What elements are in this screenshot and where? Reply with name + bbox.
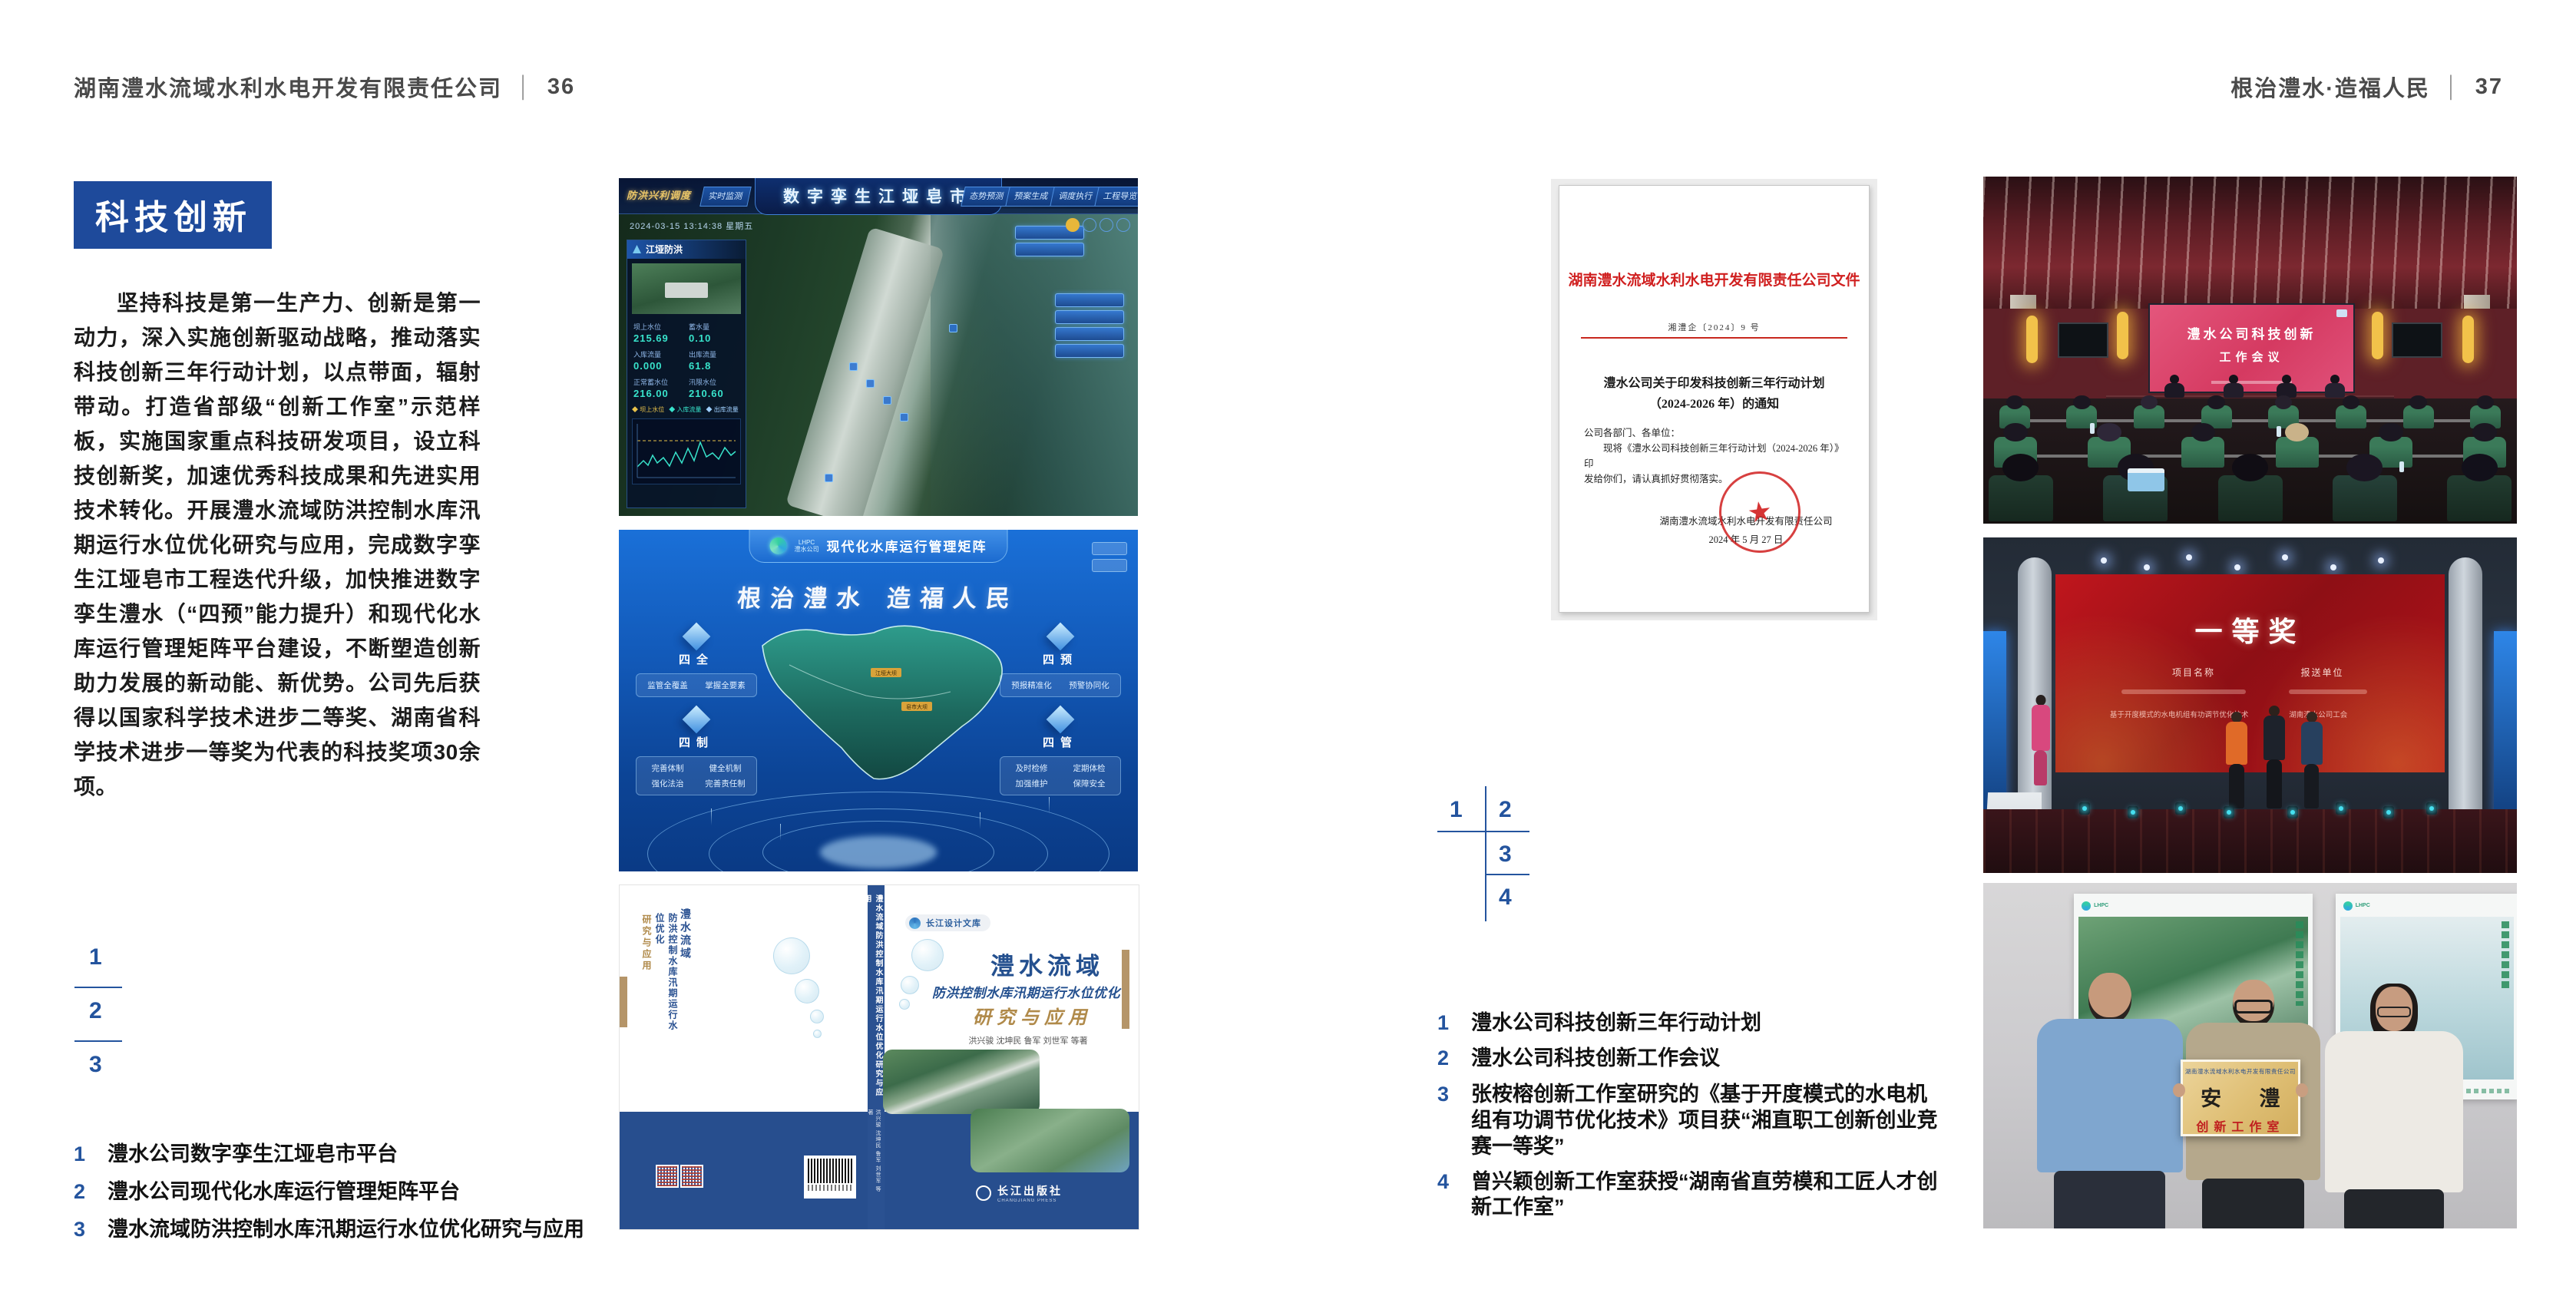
left-data-panel: 江垭防洪 坝上水位215.69 蓄水量0.10 入库流量0.000 出库流量61… bbox=[627, 240, 746, 508]
figure-official-document: 湖南澧水流域水利水电开发有限责任公司文件 湘澧企〔2024〕9 号 澧水公司关于… bbox=[1551, 179, 1877, 620]
figure-index-1: 1 bbox=[1450, 797, 1463, 823]
water-bubble bbox=[810, 1010, 824, 1023]
map-marker bbox=[825, 474, 833, 482]
cube-icon bbox=[683, 623, 711, 651]
qr-code bbox=[656, 1165, 679, 1188]
motto: 根治澧水·造福人民 bbox=[2230, 71, 2430, 103]
cover-authors: 洪兴骏 沈坤民 鲁军 刘世军 等著 bbox=[936, 1034, 1120, 1046]
spine-authors: 洪兴骏 沈坤民 鲁军 刘世军 等著 bbox=[871, 1109, 881, 1194]
water-bubble bbox=[813, 1030, 822, 1038]
stat: 入库流量0.000 bbox=[633, 349, 684, 373]
stat: 正常蓄水位216.00 bbox=[633, 377, 684, 401]
figure-index-3: 3 bbox=[89, 1052, 102, 1078]
slogan-calligraphy: 根治澧水 造福人民 bbox=[619, 579, 1138, 613]
map-marker-label: 江垭大坝 bbox=[875, 670, 897, 676]
page-number-left: 36 bbox=[547, 74, 575, 100]
light-tick bbox=[980, 812, 980, 829]
stage-light bbox=[2234, 564, 2240, 570]
timestamp: 2024-03-15 13:14:38 星期五 bbox=[630, 220, 753, 232]
figure-index-1: 1 bbox=[89, 944, 102, 970]
tissue-box bbox=[2128, 468, 2164, 491]
caption-number: 2 bbox=[74, 1179, 94, 1205]
corner-group-siguan: 四管 及时检修 定期体检 加强维护 保障安全 bbox=[1000, 709, 1121, 795]
platform-title: 现代化水库运行管理矩阵 bbox=[827, 536, 987, 555]
header-divider: │ bbox=[518, 75, 532, 99]
lhpc-logo-icon: LHPC bbox=[2082, 901, 2108, 911]
menu-button[interactable] bbox=[1092, 559, 1127, 572]
company-name: 湖南澧水流域水利水电开发有限责任公司 bbox=[74, 71, 502, 103]
logo-text: LHPC 澧水公司 bbox=[795, 539, 819, 553]
dam-thumbnail bbox=[632, 263, 741, 314]
light-tick bbox=[711, 808, 712, 825]
caption-list-left: 1 澧水公司数字孪生江垭皂市平台 2 澧水公司现代化水库运行管理矩阵平台 3 澧… bbox=[74, 1142, 584, 1242]
layers-icon[interactable] bbox=[1083, 218, 1096, 232]
moving-head-light bbox=[2224, 806, 2234, 818]
stage-light bbox=[2144, 564, 2150, 570]
map-marker bbox=[849, 362, 858, 371]
page-header-right: 根治澧水·造福人民 │ 37 bbox=[2230, 71, 2503, 103]
moving-head-light bbox=[2426, 802, 2437, 815]
audience-row bbox=[1999, 405, 2501, 428]
user-icon[interactable] bbox=[1066, 218, 1080, 232]
caption-row: 2 澧水公司现代化水库运行管理矩阵平台 bbox=[74, 1179, 584, 1205]
light-tick bbox=[780, 824, 781, 841]
moving-head-light bbox=[2128, 806, 2138, 818]
page-number-right: 37 bbox=[2475, 74, 2503, 100]
side-led-screen bbox=[2494, 631, 2517, 819]
cover-title: 澧水流域 bbox=[908, 947, 1104, 981]
corner-group-siquan: 四全 监管全覆盖 掌握全要素 bbox=[636, 627, 757, 697]
index-divider bbox=[1486, 874, 1529, 875]
info-pill bbox=[1055, 327, 1124, 341]
side-tv-screen bbox=[2392, 322, 2442, 358]
caption-text: 澧水公司现代化水库运行管理矩阵平台 bbox=[107, 1179, 460, 1205]
panel-title: 江垭防洪 bbox=[627, 240, 746, 259]
caption-number: 3 bbox=[1437, 1081, 1457, 1159]
caption-number: 1 bbox=[1437, 1010, 1457, 1036]
award-led-screen: 一等奖 项目名称 报送单位 基于开度模式的水电机组有功调节优化技术 湖南澧水公司… bbox=[2055, 574, 2445, 772]
host-figure bbox=[2032, 695, 2050, 787]
map-marker bbox=[883, 396, 891, 405]
figure-index-4: 4 bbox=[1499, 884, 1512, 911]
audience-row-foreground bbox=[1989, 475, 2512, 521]
caption-text: 澧水公司数字孪生江垭皂市平台 bbox=[107, 1142, 398, 1167]
caption-text: 澧水公司科技创新三年行动计划 bbox=[1471, 1010, 1761, 1036]
figure-digital-twin-platform: 防洪兴利调度 实时监测 洪水预报 防汛预警 数字孪生江垭皂市 态势预测 预案生成… bbox=[619, 178, 1138, 516]
tab-plan-generation[interactable]: 预案生成 bbox=[1005, 187, 1057, 207]
chart-legend: ◆ 坝上水位 ◆ 入库流量 ◆ 出库流量 bbox=[627, 404, 746, 415]
index-divider bbox=[74, 987, 122, 988]
speaker-silhouette bbox=[2277, 375, 2297, 398]
column-submitting-unit: 报送单位 bbox=[2300, 666, 2343, 679]
locate-icon[interactable] bbox=[1100, 218, 1113, 232]
water-bottle bbox=[2090, 423, 2095, 434]
moving-head-light bbox=[2287, 806, 2298, 818]
document-red-header: 湖南澧水流域水利水电开发有限责任公司文件 bbox=[1559, 269, 1869, 289]
close-button[interactable] bbox=[1092, 542, 1127, 555]
caption-text: 澧水流域防洪控制水库汛期运行水位优化研究与应用 bbox=[107, 1217, 584, 1242]
lhpc-logo-icon bbox=[770, 537, 787, 554]
cube-icon bbox=[683, 706, 711, 734]
info-pill bbox=[1055, 310, 1124, 324]
body-paragraph: 坚持科技是第一生产力、创新是第一动力，深入实施创新驱动战略，推动落实科技创新三年… bbox=[74, 286, 481, 804]
stat: 汛限水位210.60 bbox=[689, 377, 739, 401]
water-bubble bbox=[795, 979, 819, 1003]
water-bottle bbox=[2277, 426, 2281, 437]
wall-lamp bbox=[2372, 312, 2383, 359]
speaker-silhouette bbox=[2164, 375, 2184, 398]
document-number: 湘澧企〔2024〕9 号 bbox=[1559, 321, 1869, 333]
screen-title-line1: 澧水公司科技创新 bbox=[2150, 323, 2353, 342]
publisher-logo: 长江出版社 CHANGJIANG PRESS bbox=[976, 1183, 1063, 1203]
series-logo-icon bbox=[909, 918, 921, 929]
caption-number: 2 bbox=[1437, 1046, 1457, 1071]
map-marker bbox=[949, 324, 957, 332]
front-cover-tan-bar bbox=[1122, 950, 1129, 1029]
figure-index-2: 2 bbox=[89, 998, 102, 1024]
index-divider bbox=[1437, 831, 1529, 832]
qr-code bbox=[680, 1165, 703, 1188]
moving-head-light bbox=[2336, 802, 2346, 815]
moving-head-light bbox=[2079, 802, 2090, 815]
caption-number: 1 bbox=[74, 1142, 94, 1167]
speaker-silhouette bbox=[2224, 375, 2244, 398]
recipient-navy-jacket bbox=[2301, 712, 2323, 810]
plaque-calligraphy: 安 澧 bbox=[2183, 1082, 2297, 1112]
back-cover-title: 澧水流域 防洪控制水库汛期运行水位优化 研究与应用 bbox=[640, 908, 692, 1037]
stat: 坝上水位215.69 bbox=[633, 322, 684, 346]
caption-row: 4 曾兴颖创新工作室获授“湖南省直劳模和工匠人才创新工作室” bbox=[1437, 1169, 1938, 1220]
innovation-studio-plaque: 湖南澧水流域水利水电开发有限责任公司 安 澧 创新工作室 bbox=[2181, 1060, 2300, 1137]
column-project-name: 项目名称 bbox=[2172, 666, 2215, 679]
meeting-ceiling bbox=[1983, 177, 2517, 316]
header-divider: │ bbox=[2445, 75, 2460, 99]
document-red-rule bbox=[1581, 337, 1847, 339]
stage-light bbox=[2186, 554, 2192, 560]
entry-text-blurred bbox=[2121, 689, 2246, 694]
info-pill bbox=[1055, 293, 1124, 307]
lhpc-logo-icon: LHPC bbox=[2343, 901, 2370, 911]
caption-text: 澧水公司科技创新工作会议 bbox=[1471, 1046, 1720, 1071]
plaque-title: 创新工作室 bbox=[2183, 1116, 2297, 1135]
document-title: 澧水公司关于印发科技创新三年行动计划 （2024-2026 年）的通知 bbox=[1559, 373, 1869, 415]
caption-row: 3 张桉榕创新工作室研究的《基于开度模式的水电机组有功调节优化技术》项目获“湘直… bbox=[1437, 1081, 1938, 1159]
spine-title: 澧水流域防洪控制水库汛期运行水位优化研究与应用 bbox=[868, 894, 884, 1103]
woman-white-tee bbox=[2325, 984, 2463, 1229]
photo-studio-plaque: LHPC LHPC 湖南澧水流域水利水 bbox=[1983, 883, 2517, 1228]
figure-book-cover: 澧水流域 防洪控制水库汛期运行水位优化 研究与应用 澧水流域防洪控制水库汛期运行… bbox=[619, 884, 1139, 1230]
screen-title-line2: 工作会议 bbox=[2150, 349, 2353, 365]
settings-icon[interactable] bbox=[1116, 218, 1130, 232]
moving-head-light bbox=[2383, 806, 2394, 818]
stage-pillar bbox=[2449, 557, 2482, 839]
corner-group-sizhi: 四制 完善体制 健全机制 强化法治 完善责任制 bbox=[636, 709, 757, 795]
stage-light bbox=[2330, 564, 2336, 570]
figure-matrix-platform: LHPC 澧水公司 现代化水库运行管理矩阵 根治澧水 造福人民 江垭大坝 皂市大… bbox=[619, 530, 1138, 871]
photo-award-ceremony: 一等奖 项目名称 报送单位 基于开度模式的水电机组有功调节优化技术 湖南澧水公司… bbox=[1983, 537, 2517, 873]
platform-header: LHPC 澧水公司 现代化水库运行管理矩阵 bbox=[749, 530, 1008, 563]
recipient-orange-jacket bbox=[2226, 712, 2247, 810]
caption-row: 2 澧水公司科技创新工作会议 bbox=[1437, 1046, 1938, 1071]
tab-situation-forecast[interactable]: 态势预测 bbox=[961, 187, 1013, 207]
watershed-map: 江垭大坝 皂市大坝 bbox=[720, 611, 1037, 795]
water-bubble bbox=[773, 937, 810, 974]
caption-row: 3 澧水流域防洪控制水库汛期运行水位优化研究与应用 bbox=[74, 1217, 584, 1242]
stage-light bbox=[2282, 554, 2288, 560]
caption-row: 1 澧水公司科技创新三年行动计划 bbox=[1437, 1010, 1938, 1036]
ripple-glow bbox=[820, 836, 937, 868]
tab-dispatch-execution[interactable]: 调度执行 bbox=[1050, 187, 1102, 207]
caption-text: 曾兴颖创新工作室获授“湖南省直劳模和工匠人才创新工作室” bbox=[1471, 1169, 1938, 1220]
poster-vertical-calligraphy bbox=[2502, 921, 2509, 990]
caption-number: 3 bbox=[74, 1217, 94, 1242]
figure-index-2: 2 bbox=[1499, 797, 1512, 823]
caption-row: 1 澧水公司数字孪生江垭皂市平台 bbox=[74, 1142, 584, 1167]
caption-number: 4 bbox=[1437, 1169, 1457, 1220]
page-header-left: 湖南澧水流域水利水电开发有限责任公司 │ 36 bbox=[74, 71, 575, 103]
document-sheet: 湖南澧水流域水利水电开发有限责任公司文件 湘澧企〔2024〕9 号 澧水公司关于… bbox=[1559, 185, 1870, 613]
wall-lamp bbox=[2462, 316, 2474, 363]
dam-photo-front bbox=[883, 1050, 1040, 1114]
water-bottle bbox=[2399, 461, 2404, 472]
speaker-silhouette bbox=[2325, 375, 2345, 398]
cube-icon bbox=[1047, 623, 1075, 651]
map-marker bbox=[900, 413, 908, 422]
powerhouse-photo bbox=[971, 1109, 1129, 1172]
cover-subtitle: 防洪控制水库汛期运行水位优化 bbox=[901, 982, 1120, 1001]
plaque-header: 湖南澧水流域水利水电开发有限责任公司 bbox=[2183, 1067, 2297, 1076]
side-led-screen bbox=[1983, 631, 2006, 819]
screen-logo-icon bbox=[2336, 309, 2347, 317]
tab-project-tour[interactable]: 工程导览 bbox=[1094, 187, 1138, 207]
stat: 蓄水量0.10 bbox=[689, 322, 739, 346]
entry-text-blurred bbox=[2289, 689, 2366, 694]
caption-list-right: 1 澧水公司科技创新三年行动计划 2 澧水公司科技创新工作会议 3 张桉榕创新工… bbox=[1437, 1010, 1938, 1220]
man-blue-polo bbox=[2037, 973, 2183, 1228]
book-spread: 湖南澧水流域水利水电开发有限责任公司 │ 36 根治澧水·造福人民 │ 37 科… bbox=[0, 0, 2576, 1306]
cube-icon bbox=[1047, 706, 1075, 734]
light-tick bbox=[1049, 797, 1050, 814]
moving-head-light bbox=[2175, 802, 2186, 815]
side-tv-screen bbox=[2058, 322, 2108, 358]
tab-realtime-monitor[interactable]: 实时监测 bbox=[699, 187, 752, 207]
map-marker bbox=[866, 379, 875, 388]
wall-lamp bbox=[2117, 312, 2128, 359]
document-body: 公司各部门、各单位： 现将《澧水公司科技创新三年行动计划（2024-2026 年… bbox=[1584, 425, 1846, 487]
mode-label: 防洪兴利调度 bbox=[627, 187, 691, 202]
stage-floor bbox=[1983, 809, 2517, 873]
hand bbox=[2173, 1083, 2185, 1097]
photo-innovation-meeting: 澧水公司科技创新 工作会议 bbox=[1983, 177, 2517, 524]
caption-text: 张桉榕创新工作室研究的《基于开度模式的水电机组有功调节优化技术》项目获“湘直职工… bbox=[1471, 1081, 1938, 1159]
cover-title-accent: 研究与应用 bbox=[908, 1002, 1092, 1029]
water-level-chart bbox=[632, 418, 741, 484]
info-pill bbox=[1055, 344, 1124, 358]
info-pill bbox=[1015, 243, 1084, 256]
section-title: 科技创新 bbox=[74, 181, 272, 249]
recipient-suit bbox=[2264, 706, 2285, 810]
stat: 出库流量61.8 bbox=[689, 349, 739, 373]
wall-lamp bbox=[2026, 316, 2038, 363]
hand bbox=[2296, 1083, 2308, 1097]
award-title: 一等奖 bbox=[2055, 610, 2445, 650]
map-marker-label: 皂市大坝 bbox=[906, 703, 928, 710]
index-divider-vertical bbox=[1485, 786, 1486, 921]
publisher-icon bbox=[976, 1185, 991, 1201]
barcode bbox=[804, 1156, 856, 1199]
series-badge: 长江设计文库 bbox=[905, 914, 990, 931]
index-divider bbox=[74, 1040, 122, 1042]
figure-index-3: 3 bbox=[1499, 841, 1512, 868]
corner-group-siyu: 四预 预报精准化 预警协同化 bbox=[1000, 627, 1121, 697]
stats-grid: 坝上水位215.69 蓄水量0.10 入库流量0.000 出库流量61.8 正常… bbox=[627, 319, 746, 404]
back-cover-tan-bar bbox=[620, 977, 627, 1027]
